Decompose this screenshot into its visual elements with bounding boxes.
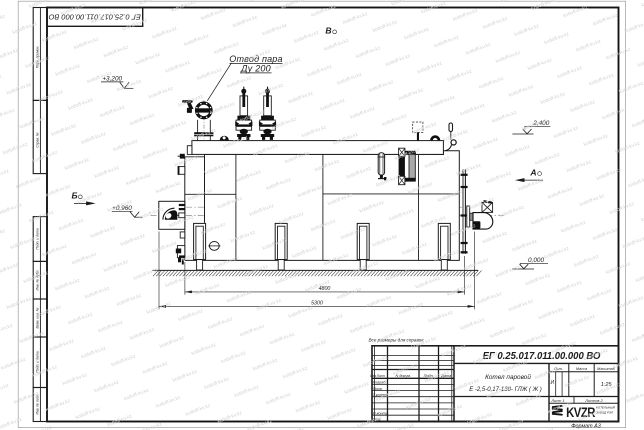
svg-text:В: В (325, 26, 331, 36)
svg-text:Все размеры для справок: Все размеры для справок (368, 337, 424, 342)
svg-text:Масса: Масса (576, 367, 587, 371)
svg-text:И: И (551, 380, 555, 386)
svg-text:Подп. и дата: Подп. и дата (35, 228, 39, 249)
svg-text:Ду 200: Ду 200 (240, 64, 271, 74)
svg-text:А: А (529, 167, 536, 177)
svg-text:Листов 2: Листов 2 (584, 398, 603, 403)
svg-text:Б: Б (71, 191, 77, 201)
svg-text:Лист 1: Лист 1 (550, 398, 564, 403)
svg-text:Котел паровой: Котел паровой (485, 373, 531, 381)
svg-text:Разраб.: Разраб. (373, 381, 387, 385)
svg-text:Подп. и дата: Подп. и дата (35, 351, 39, 372)
svg-text:5300: 5300 (311, 301, 323, 307)
svg-text:Пров.: Пров. (373, 387, 383, 391)
svg-text:Формат А3: Формат А3 (571, 423, 601, 429)
svg-text:Справ. №: Справ. № (35, 132, 39, 148)
svg-text:Лист: Лист (376, 374, 386, 378)
